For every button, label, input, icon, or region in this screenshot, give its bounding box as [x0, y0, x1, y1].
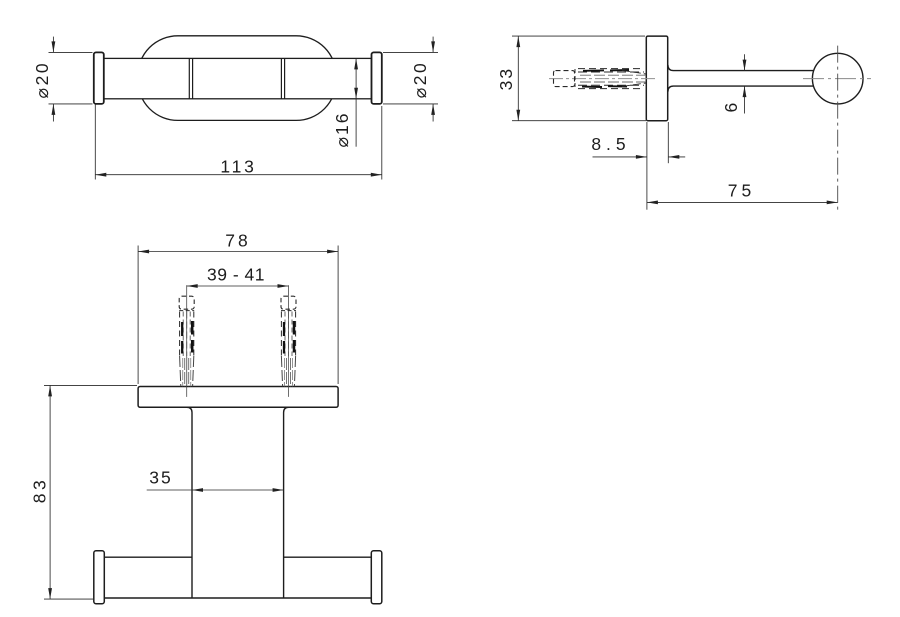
svg-text:78: 78 [225, 231, 250, 251]
svg-text:⌀20: ⌀20 [32, 61, 52, 99]
svg-text:113: 113 [220, 156, 256, 176]
svg-text:75: 75 [728, 181, 755, 201]
svg-text:8.5: 8.5 [591, 134, 630, 154]
svg-text:83: 83 [30, 477, 50, 503]
svg-text:6: 6 [721, 101, 741, 113]
svg-text:35: 35 [149, 467, 172, 487]
svg-text:33: 33 [496, 67, 516, 90]
svg-text:⌀16: ⌀16 [332, 111, 352, 147]
svg-text:39 - 41: 39 - 41 [207, 265, 265, 285]
svg-text:⌀20: ⌀20 [410, 61, 430, 99]
